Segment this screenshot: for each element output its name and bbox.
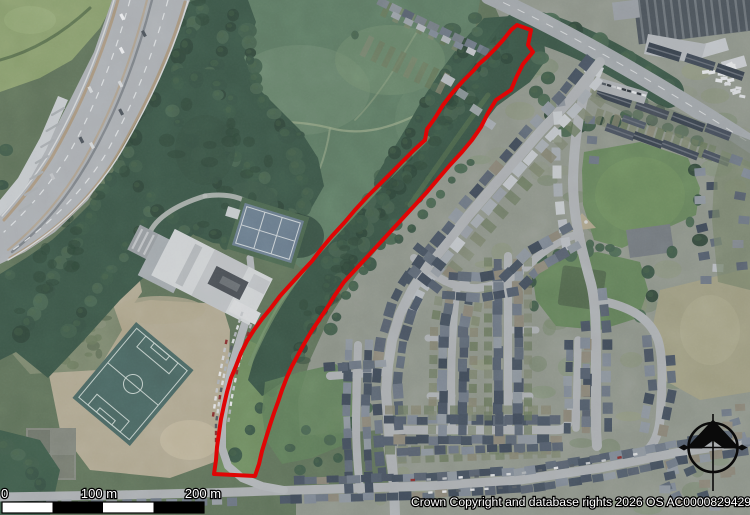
- svg-text:200 m: 200 m: [185, 486, 221, 501]
- svg-text:Crown Copyright and database r: Crown Copyright and database rights 2026…: [411, 495, 750, 509]
- svg-text:100 m: 100 m: [81, 486, 117, 501]
- svg-text:0: 0: [1, 486, 8, 501]
